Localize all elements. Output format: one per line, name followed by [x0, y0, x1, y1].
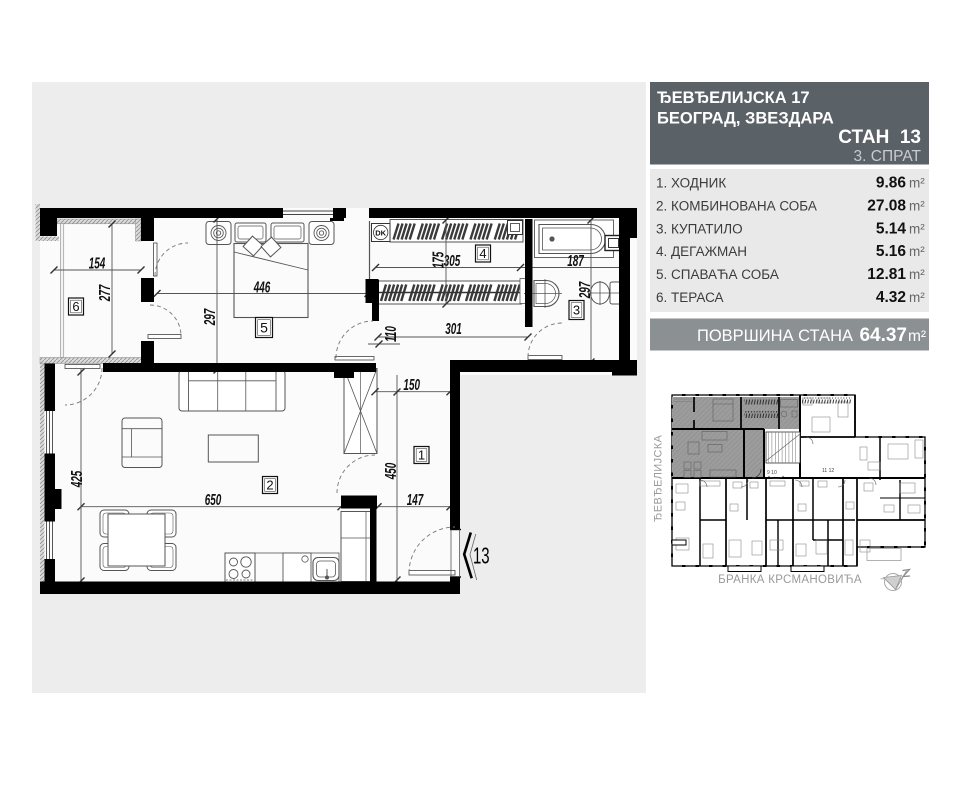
svg-text:m²: m²: [909, 244, 925, 259]
svg-text:m²: m²: [909, 290, 925, 305]
svg-text:5.16: 5.16: [876, 243, 907, 260]
svg-text:ЂЕВЂЕЛИЈСКА: ЂЕВЂЕЛИЈСКА: [653, 434, 665, 522]
svg-text:3. СПРАТ: 3. СПРАТ: [854, 148, 922, 165]
svg-text:154: 154: [89, 254, 106, 272]
svg-text:ПОВРШИНА СТАНА: ПОВРШИНА СТАНА: [697, 327, 853, 345]
svg-text:4.32: 4.32: [876, 289, 906, 306]
svg-text:БРАНКА КРСМАНОВИЋА: БРАНКА КРСМАНОВИЋА: [718, 574, 862, 586]
svg-text:5.14: 5.14: [876, 220, 907, 237]
svg-text:m²: m²: [909, 198, 925, 213]
svg-text:3: 3: [573, 303, 580, 318]
svg-text:277: 277: [96, 284, 114, 302]
svg-text:6. ТЕРАСА: 6. ТЕРАСА: [656, 290, 724, 305]
svg-text:2: 2: [266, 478, 273, 493]
svg-text:450: 450: [382, 462, 400, 480]
svg-text:m²: m²: [909, 221, 925, 236]
svg-text:2. КОМБИНОВАНА СОБА: 2. КОМБИНОВАНА СОБА: [656, 198, 817, 213]
svg-text:110: 110: [382, 326, 400, 342]
svg-text:301: 301: [445, 320, 462, 338]
svg-text:446: 446: [253, 278, 271, 296]
svg-text:DK: DK: [375, 228, 386, 237]
svg-text:5. СПАВАЋА СОБА: 5. СПАВАЋА СОБА: [656, 267, 779, 282]
svg-text:1: 1: [418, 448, 425, 463]
svg-text:650: 650: [205, 491, 222, 509]
svg-text:147: 147: [407, 491, 424, 509]
svg-text:297: 297: [576, 281, 594, 299]
svg-text:64.37: 64.37: [859, 325, 907, 346]
svg-text:187: 187: [567, 252, 584, 270]
svg-text:m²: m²: [909, 267, 925, 282]
svg-text:4. ДЕГАЖМАН: 4. ДЕГАЖМАН: [656, 244, 747, 259]
svg-text:1. ХОДНИК: 1. ХОДНИК: [656, 176, 726, 191]
svg-text:13: 13: [473, 543, 490, 569]
svg-text:ЂЕВЂЕЛИЈСКА 17: ЂЕВЂЕЛИЈСКА 17: [657, 89, 810, 107]
svg-text:9 10: 9 10: [767, 470, 777, 476]
svg-text:5: 5: [260, 320, 268, 336]
svg-text:3. КУПАТИЛО: 3. КУПАТИЛО: [656, 221, 743, 236]
svg-text:m²: m²: [908, 328, 926, 345]
svg-text:4: 4: [479, 246, 486, 261]
svg-text:11 12: 11 12: [822, 468, 834, 474]
svg-text:БЕОГРАД, ЗВЕЗДАРА: БЕОГРАД, ЗВЕЗДАРА: [657, 110, 834, 128]
svg-text:m²: m²: [909, 176, 925, 191]
svg-text:СТАН 13: СТАН 13: [838, 127, 921, 148]
svg-text:6: 6: [72, 299, 79, 314]
svg-text:12.81: 12.81: [867, 266, 906, 283]
svg-text:297: 297: [201, 308, 219, 326]
svg-text:27.08: 27.08: [867, 197, 906, 214]
svg-text:150: 150: [403, 376, 420, 394]
svg-text:425: 425: [68, 470, 86, 488]
svg-text:175: 175: [429, 251, 447, 268]
svg-text:9.86: 9.86: [876, 175, 907, 192]
